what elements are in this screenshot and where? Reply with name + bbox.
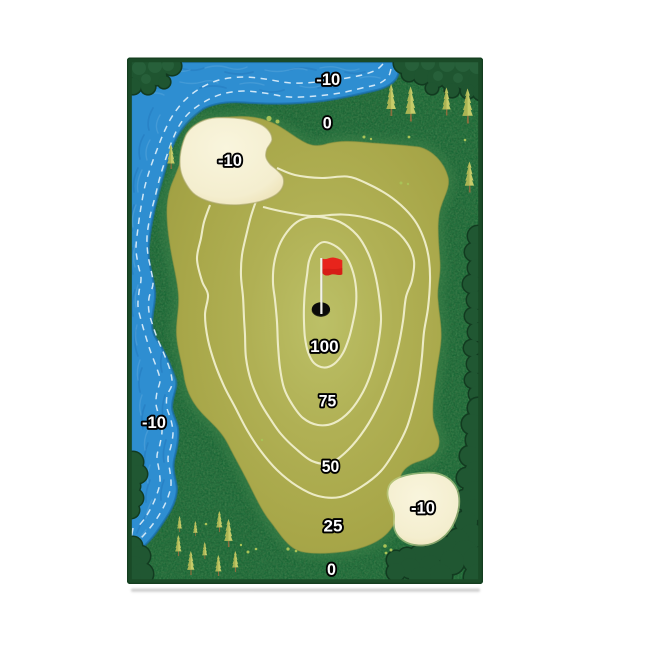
svg-text:75: 75 xyxy=(319,392,337,411)
svg-text:0: 0 xyxy=(323,114,332,133)
svg-text:-10: -10 xyxy=(218,151,242,170)
svg-text:0: 0 xyxy=(327,560,336,579)
svg-text:100: 100 xyxy=(310,337,339,356)
svg-text:-10: -10 xyxy=(316,70,340,89)
svg-text:25: 25 xyxy=(324,517,343,536)
svg-text:-10: -10 xyxy=(411,499,435,518)
svg-text:50: 50 xyxy=(322,457,340,476)
svg-text:-10: -10 xyxy=(142,413,166,432)
